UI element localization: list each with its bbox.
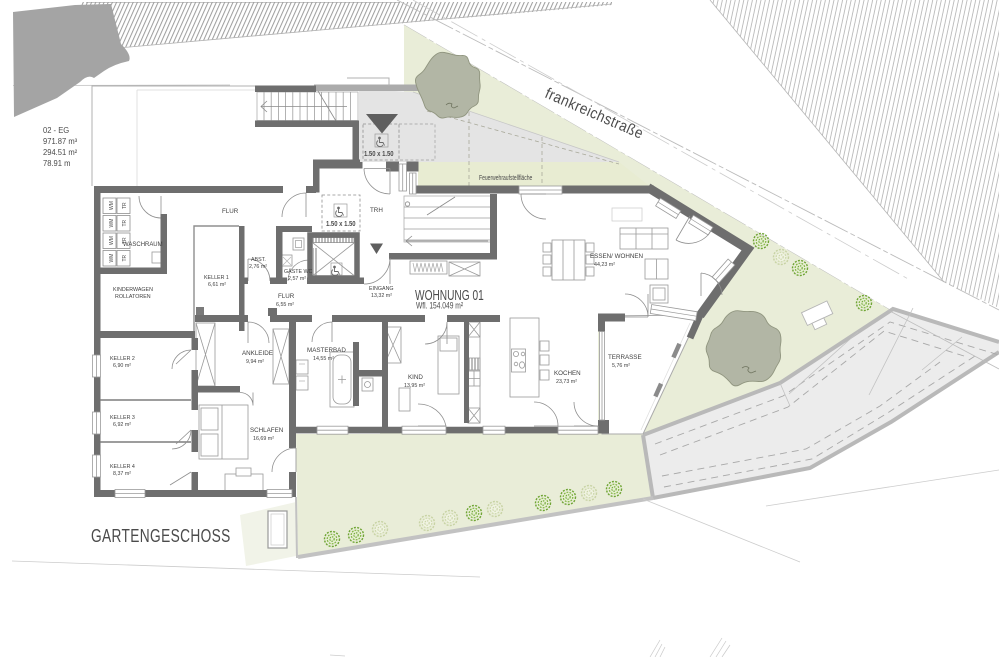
svg-text:294.51 m²: 294.51 m² bbox=[43, 148, 78, 157]
svg-text:KELLER 1: KELLER 1 bbox=[204, 275, 229, 281]
svg-text:KELLER 4: KELLER 4 bbox=[110, 464, 135, 470]
svg-text:9,94 m²: 9,94 m² bbox=[246, 359, 264, 365]
svg-text:TERRASSE: TERRASSE bbox=[608, 354, 642, 361]
svg-text:16,69 m²: 16,69 m² bbox=[253, 436, 274, 442]
svg-text:44,23 m²: 44,23 m² bbox=[594, 262, 615, 268]
svg-text:78.91 m: 78.91 m bbox=[43, 159, 70, 168]
svg-text:WASCHRAUM: WASCHRAUM bbox=[123, 241, 163, 248]
svg-text:MASTERBAD: MASTERBAD bbox=[307, 347, 346, 354]
svg-text:5,76 m²: 5,76 m² bbox=[612, 363, 630, 369]
svg-text:23,73 m²: 23,73 m² bbox=[556, 379, 577, 385]
svg-text:FLUR: FLUR bbox=[222, 208, 239, 215]
svg-text:13,95 m²: 13,95 m² bbox=[404, 383, 425, 389]
svg-text:WM: WM bbox=[109, 236, 115, 245]
svg-text:13,32 m²: 13,32 m² bbox=[371, 293, 392, 299]
svg-text:1.50 x 1.50: 1.50 x 1.50 bbox=[326, 220, 356, 228]
svg-text:SCHLAFEN: SCHLAFEN bbox=[250, 427, 284, 434]
svg-text:GARTENGESCHOSS: GARTENGESCHOSS bbox=[91, 526, 231, 547]
svg-text:14,55 m²: 14,55 m² bbox=[313, 356, 334, 362]
svg-text:FLUR: FLUR bbox=[278, 293, 295, 300]
svg-text:KELLER 3: KELLER 3 bbox=[110, 415, 135, 421]
svg-text:ROLLATOREN: ROLLATOREN bbox=[115, 294, 151, 300]
svg-text:Feuerwehraufstellfläche: Feuerwehraufstellfläche bbox=[479, 174, 533, 182]
svg-text:ESSEN/ WOHNEN: ESSEN/ WOHNEN bbox=[590, 253, 643, 260]
svg-text:02 - EG: 02 - EG bbox=[43, 126, 69, 135]
svg-text:6,92 m²: 6,92 m² bbox=[113, 422, 131, 428]
svg-text:KINDERWAGEN: KINDERWAGEN bbox=[113, 287, 153, 293]
svg-text:8,37 m²: 8,37 m² bbox=[113, 471, 131, 477]
svg-text:TRH: TRH bbox=[370, 207, 383, 214]
svg-text:WM: WM bbox=[109, 219, 115, 228]
svg-text:KOCHEN: KOCHEN bbox=[554, 370, 581, 377]
svg-text:2,57 m²: 2,57 m² bbox=[288, 276, 306, 282]
svg-text:2,76 m²: 2,76 m² bbox=[249, 264, 267, 270]
svg-text:Wfl. 154.049 m²: Wfl. 154.049 m² bbox=[416, 300, 463, 310]
svg-text:971.87 m³: 971.87 m³ bbox=[43, 137, 78, 146]
svg-text:6,90 m²: 6,90 m² bbox=[113, 363, 131, 369]
svg-text:KELLER 2: KELLER 2 bbox=[110, 356, 135, 362]
svg-text:WM: WM bbox=[109, 201, 115, 210]
svg-text:TR: TR bbox=[122, 254, 128, 261]
svg-text:EINGANG: EINGANG bbox=[369, 286, 394, 292]
svg-text:GÄSTE WC: GÄSTE WC bbox=[284, 268, 312, 275]
svg-text:6,61 m²: 6,61 m² bbox=[208, 282, 226, 288]
svg-text:ABST.: ABST. bbox=[251, 257, 266, 263]
svg-text:TR: TR bbox=[122, 219, 128, 226]
svg-text:6,55 m²: 6,55 m² bbox=[276, 302, 294, 308]
svg-text:WM: WM bbox=[109, 254, 115, 263]
svg-text:KIND: KIND bbox=[408, 374, 423, 381]
svg-text:ANKLEIDE: ANKLEIDE bbox=[242, 350, 273, 357]
svg-text:1.50 x 1.50: 1.50 x 1.50 bbox=[364, 150, 394, 158]
svg-text:TR: TR bbox=[122, 202, 128, 209]
